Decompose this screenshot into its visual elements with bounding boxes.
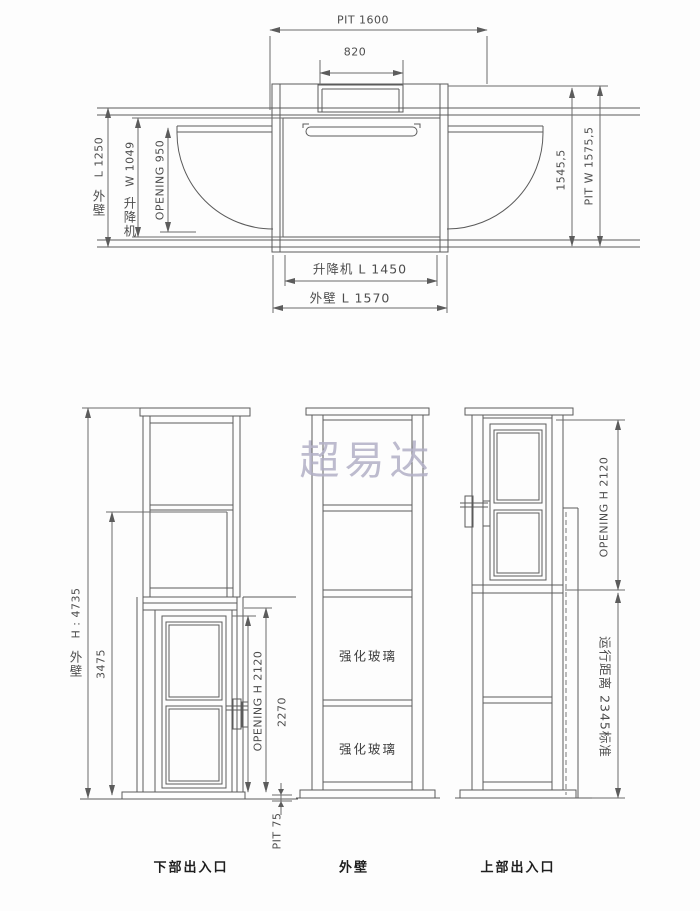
right-door-glass-top — [494, 430, 542, 503]
plan-machine-box-inner — [322, 89, 399, 112]
right-guide-channel — [563, 508, 578, 798]
cjk-char: 壁 — [70, 664, 83, 678]
dim-outer-length-label: 外壁 L 1570 — [310, 288, 391, 307]
caption-lower-entrance: 下部出入口 — [153, 857, 228, 876]
plan-car-door — [306, 127, 417, 136]
cjk-char: 壁 — [93, 203, 106, 217]
right-door-glass-top-inner — [497, 433, 539, 500]
cjk-char: 外 — [93, 189, 106, 203]
pit-arrow-bottom — [278, 801, 284, 807]
dim-opening-height-left-label: OPENING H 2120 — [252, 651, 265, 752]
left-door-glass-top — [166, 622, 222, 700]
left-lower-frame — [137, 597, 243, 792]
plan-shaft-outline — [272, 84, 448, 252]
right-base-plate — [460, 790, 576, 798]
left-door-glass-top-inner — [169, 625, 219, 697]
caption-upper-entrance: 上部出入口 — [480, 857, 555, 876]
left-door-leaf — [162, 616, 226, 788]
glass-panel-label-2: 强化玻璃 — [339, 739, 397, 758]
dim-rail-height-label: 3475 — [95, 649, 108, 679]
right-door-leaf — [490, 424, 546, 580]
dim-pit-width-label: PIT W 1575,5 — [583, 127, 596, 206]
elevation-lower-entrance — [80, 408, 298, 799]
elevator-technical-drawing: PIT 1600 820 L 1250 外 壁 W 1049 升 降 机 OPE… — [0, 0, 700, 911]
right-column — [472, 415, 563, 790]
caption-outer-wall: 外壁 — [339, 857, 369, 876]
dim-opening-width-label: OPENING 950 — [154, 140, 167, 220]
right-door-handle-bar — [460, 503, 488, 507]
dim-opening-height-right-label: OPENING H 2120 — [598, 457, 611, 558]
dim-outer-depth-label-num: L 1250 — [93, 137, 106, 178]
left-column-rails — [150, 423, 233, 588]
dim-outer-depth-label-cjk: 外 壁 — [93, 189, 106, 217]
left-door-frame — [155, 610, 232, 792]
left-door-glass-bottom-inner — [169, 709, 219, 781]
right-top-cap — [465, 408, 573, 415]
dim-travel-label: 运行距离 2345标准 — [597, 636, 616, 758]
left-top-cap — [140, 408, 250, 416]
dim-total-height-label-num: H : 4735 — [70, 588, 83, 639]
right-lower-rails — [483, 697, 552, 782]
plan-right-door-swing-arc — [447, 133, 543, 229]
cjk-char: 机 — [124, 224, 137, 238]
left-column-posts — [150, 416, 233, 597]
left-elevation-dimensions — [82, 408, 292, 815]
right-sill-lines — [472, 585, 563, 593]
cjk-char: 升 — [124, 196, 137, 210]
dim-car-width-label-cjk: 升 降 机 — [124, 196, 137, 237]
left-transom — [143, 603, 237, 610]
watermark-text: 超易达 — [300, 428, 435, 486]
plan-left-door-swing-arc — [177, 133, 273, 229]
dim-car-width-label-num: W 1049 — [124, 141, 137, 186]
left-door-glass-bottom — [166, 706, 222, 784]
plan-shaft-posts — [280, 84, 440, 252]
elevation-upper-entrance — [455, 408, 592, 798]
plan-right-door-leaf — [448, 126, 543, 133]
right-door-glass-bottom-inner — [497, 513, 539, 573]
dim-car-length-label: 升降机 L 1450 — [313, 259, 407, 278]
dim-door-height-label: 2270 — [276, 697, 289, 727]
dim-inner-width-label: 1545,5 — [555, 149, 568, 191]
pit-arrow-top — [278, 789, 284, 795]
dim-top-opening-label: 820 — [344, 46, 367, 59]
dim-total-height-label-cjk: 外 壁 — [70, 650, 83, 678]
left-base-plate — [122, 792, 245, 799]
middle-base-plate — [300, 790, 435, 798]
plan-left-door-leaf — [177, 126, 272, 133]
cjk-char: 外 — [70, 650, 83, 664]
middle-top-cap — [306, 408, 429, 415]
right-door-glass-bottom — [494, 510, 542, 576]
glass-panel-label-1: 强化玻璃 — [339, 646, 397, 665]
dim-pit-length-label: PIT 1600 — [337, 14, 389, 27]
right-door-handle-knob — [483, 501, 490, 526]
left-upper-column — [143, 416, 240, 597]
cjk-char: 降 — [124, 210, 137, 224]
dim-pit-depth-label: PIT 75 — [271, 812, 284, 849]
